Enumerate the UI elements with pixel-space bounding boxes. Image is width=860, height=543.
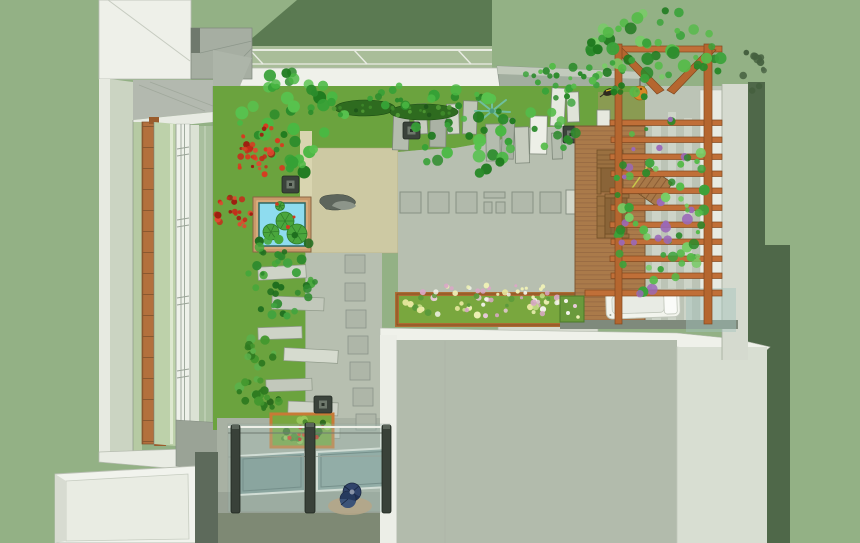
leaf [504, 309, 508, 313]
leaf [677, 161, 684, 168]
leaf [267, 288, 274, 295]
leaf [644, 127, 648, 131]
leaf [668, 117, 673, 122]
leaf [531, 73, 536, 78]
leaf [631, 147, 635, 151]
leaf [541, 143, 549, 151]
leaf [250, 212, 253, 215]
leaf [525, 287, 528, 290]
leaf [660, 252, 666, 258]
garden-render-viewport [0, 0, 860, 543]
leaf [243, 217, 248, 222]
leaf [291, 308, 298, 315]
leaf [450, 84, 461, 95]
leaf [631, 239, 637, 245]
leaf [640, 74, 649, 83]
wall-vent [191, 28, 200, 53]
leaf [653, 166, 659, 172]
leaf [264, 395, 270, 401]
leaf [678, 260, 685, 267]
leaf [269, 353, 276, 360]
block-roof-light [677, 347, 767, 543]
pergola-post-east [704, 44, 712, 324]
leaf [257, 378, 263, 384]
leaf [622, 175, 627, 180]
lower-roof-block [380, 328, 770, 543]
leaf [295, 290, 301, 296]
leaf [229, 210, 233, 214]
leaf [659, 74, 665, 80]
leaf [289, 136, 300, 147]
leaf [215, 212, 222, 219]
leaf [543, 67, 550, 74]
leaf [628, 57, 635, 64]
leaf [367, 96, 373, 102]
leaf [271, 79, 281, 89]
side-planter [560, 296, 584, 322]
leaf [475, 168, 485, 178]
leaf [646, 265, 652, 271]
leaf [581, 74, 587, 80]
leaf [498, 114, 509, 125]
leaf [655, 62, 663, 70]
leaf [278, 255, 283, 260]
leaf [687, 253, 696, 262]
leaf [245, 344, 251, 350]
leaf [495, 125, 506, 136]
leaf [506, 144, 515, 153]
leaf [689, 239, 699, 249]
leaf [309, 145, 318, 154]
leaf [251, 165, 254, 168]
leaf [489, 298, 494, 303]
leaf [618, 64, 627, 73]
leaf [417, 307, 423, 313]
glass-canopy [237, 46, 492, 70]
leaf [757, 58, 765, 66]
leaf [452, 290, 458, 296]
leaf [547, 108, 556, 117]
leaf [662, 7, 669, 14]
leaf [381, 101, 390, 110]
leaf [264, 236, 272, 244]
leaf [280, 143, 284, 147]
facade-glass-strip1 [133, 122, 142, 452]
leaf [281, 68, 291, 78]
leaf [697, 221, 705, 229]
leaf [483, 313, 488, 318]
leaf [531, 300, 537, 306]
leaf [260, 133, 264, 137]
garden-render [0, 0, 860, 543]
leaf [694, 159, 699, 164]
leaf [695, 209, 703, 217]
leaf [624, 203, 633, 212]
leaf [239, 196, 245, 202]
leaf [615, 26, 622, 33]
leaf [656, 145, 662, 151]
leaf [560, 144, 567, 151]
leaf [425, 309, 432, 316]
leaf [262, 171, 268, 177]
leaf [495, 157, 504, 166]
leaf [275, 138, 280, 143]
paver-row [400, 190, 596, 214]
leaf [423, 110, 426, 113]
leaf [475, 288, 480, 293]
leaf [619, 161, 627, 169]
leaf [697, 165, 705, 173]
leaf [260, 272, 264, 276]
leaf [564, 93, 570, 99]
leaf [554, 300, 559, 305]
leaf [238, 210, 242, 214]
leaf [603, 68, 612, 77]
leaf [586, 64, 593, 71]
leaf [639, 225, 648, 234]
leaf [260, 335, 269, 344]
leaf [375, 93, 382, 100]
leaf [411, 122, 421, 132]
leaf [739, 72, 747, 80]
leaf [647, 284, 658, 295]
leaf [219, 201, 223, 205]
leaf [553, 83, 559, 89]
leaf [539, 287, 543, 291]
leaf [685, 204, 689, 208]
leaf [553, 131, 562, 140]
leaf [693, 55, 698, 60]
leaf [432, 155, 443, 166]
leaf [259, 360, 266, 367]
leaf [235, 106, 248, 119]
leaf [427, 94, 435, 102]
leaf [283, 312, 290, 319]
leaf [250, 348, 256, 354]
leaf [696, 230, 700, 234]
leaf [274, 235, 283, 244]
leaf [549, 63, 556, 70]
leaf [505, 304, 509, 308]
leaf [525, 107, 536, 118]
leaf [616, 250, 624, 258]
leaf [361, 110, 364, 113]
leaf [632, 12, 644, 24]
leaf [312, 279, 318, 285]
window-mullion-strip [176, 124, 190, 448]
leaf [641, 93, 648, 100]
leaf [481, 303, 485, 307]
leaf [238, 163, 241, 166]
leaf [447, 105, 452, 110]
leaf [271, 303, 276, 308]
leaf [678, 59, 691, 72]
leaf [318, 81, 328, 91]
leaf [663, 235, 672, 244]
leaf [260, 386, 269, 395]
leaf [361, 104, 364, 107]
leaf [614, 175, 620, 181]
leaf [542, 88, 549, 95]
facade-wall-strip [110, 79, 133, 454]
leaf [435, 311, 441, 317]
leaf [667, 46, 680, 59]
leaf [484, 297, 488, 301]
leaf [593, 44, 603, 54]
leaf [474, 143, 481, 150]
leaf [520, 296, 523, 299]
leaf [532, 126, 538, 132]
leaf [749, 87, 755, 93]
leaf [262, 127, 267, 132]
leaf [292, 268, 301, 277]
leaf [288, 100, 300, 112]
leaf [545, 291, 550, 296]
leaf [618, 89, 624, 95]
leaf [694, 61, 702, 69]
leaf [674, 28, 680, 34]
leaf [674, 8, 684, 18]
leaf [389, 86, 397, 94]
leaf [248, 101, 259, 112]
leaf [587, 38, 596, 47]
leaf [440, 111, 445, 116]
leaf [258, 306, 264, 312]
leaf [571, 84, 576, 89]
leaf [532, 310, 536, 314]
leaf [259, 156, 264, 161]
leaf [553, 72, 559, 78]
leaf [255, 242, 265, 252]
leaf [665, 72, 672, 79]
leaf [705, 30, 713, 38]
leaf [278, 284, 285, 291]
leaf [308, 110, 313, 115]
leaf [466, 285, 470, 289]
leaf [701, 53, 712, 64]
leaf [424, 104, 429, 109]
leaf [420, 289, 426, 295]
leaf [668, 179, 675, 186]
leaf [304, 238, 314, 248]
leaf [267, 147, 272, 152]
lily-pad-vein [297, 234, 307, 235]
leaf [245, 270, 251, 276]
leaf [589, 77, 597, 85]
leaf [252, 284, 259, 291]
leaf [615, 192, 621, 198]
leaf [509, 118, 515, 124]
leaf [480, 127, 487, 134]
leaf [234, 212, 238, 216]
leaf [423, 158, 430, 165]
leaf [306, 85, 316, 95]
leaf [474, 312, 481, 319]
leaf [610, 60, 616, 66]
leaf [396, 113, 400, 117]
leaf [243, 147, 248, 152]
leaf [649, 276, 658, 285]
leaf [676, 232, 683, 239]
leaf [619, 240, 625, 246]
leaf [264, 165, 267, 168]
leaf [625, 213, 634, 222]
leaf [696, 148, 706, 158]
leaf [442, 147, 453, 158]
leaf [241, 397, 249, 405]
leaf [678, 196, 684, 202]
leaf [445, 122, 451, 128]
leaf [521, 287, 524, 290]
leaf [304, 293, 312, 301]
leaf [708, 43, 715, 50]
leaf [523, 291, 527, 295]
leaf [436, 105, 441, 110]
leaf [629, 87, 640, 98]
white-roof-corner [99, 0, 191, 79]
leaf [645, 158, 654, 167]
leaf [279, 165, 285, 171]
leaf [237, 216, 242, 221]
leaf [427, 113, 432, 118]
leaf [473, 150, 486, 163]
leaf [619, 261, 626, 268]
leaf [481, 92, 493, 104]
leaf [553, 95, 559, 101]
leaf [618, 82, 625, 89]
leaf [402, 299, 408, 305]
leaf [369, 106, 372, 109]
leaf [448, 112, 451, 115]
leaf [655, 39, 662, 46]
leaf [671, 273, 679, 281]
leaf [270, 109, 280, 119]
leaf [338, 112, 343, 117]
leaf [473, 111, 484, 122]
leaf [570, 128, 580, 138]
leaf [480, 288, 485, 293]
leaf [474, 293, 480, 299]
leaf [268, 310, 277, 319]
leaf [281, 131, 288, 138]
leaf [285, 155, 296, 166]
leaf [253, 148, 258, 153]
leaf [625, 23, 637, 35]
leaf [685, 208, 690, 213]
leaf [688, 24, 699, 35]
leaf [467, 303, 471, 307]
leaf [245, 154, 250, 159]
facade-glass-strip3 [190, 125, 199, 450]
leaf [661, 193, 671, 203]
leaf [602, 63, 607, 68]
leaf [418, 295, 424, 301]
leaf [699, 185, 710, 196]
leaf [507, 293, 511, 297]
leaf [495, 313, 499, 317]
leaf [484, 283, 489, 288]
leaf [629, 131, 635, 137]
leaf [761, 67, 766, 72]
leaf [715, 52, 727, 64]
leaf [461, 116, 467, 122]
leaf [252, 261, 261, 270]
leaf [292, 232, 298, 238]
leaf [567, 99, 575, 107]
leaf [633, 221, 639, 227]
leaf [658, 266, 664, 272]
leaf [655, 235, 662, 242]
leaf [616, 225, 626, 235]
leaf [237, 389, 242, 394]
leaf [422, 144, 429, 151]
leaf [642, 169, 650, 177]
leaf [287, 123, 299, 135]
leaf [233, 196, 237, 200]
leaf [676, 183, 684, 191]
leaf [540, 293, 545, 298]
leaf [606, 42, 619, 55]
shadow-recess [195, 452, 218, 543]
leaf [298, 160, 306, 168]
leaf [297, 255, 307, 265]
facade-glass-strip4 [199, 126, 213, 452]
leaf [327, 98, 335, 106]
leaf [282, 249, 287, 254]
leaf [684, 154, 691, 161]
leaf [269, 404, 274, 409]
leaf [237, 153, 244, 160]
leaf [744, 50, 750, 56]
leaf [569, 63, 578, 72]
leaf [319, 127, 329, 137]
leaf [455, 102, 462, 109]
leaf [258, 167, 261, 170]
leaf [611, 89, 618, 96]
leaf [354, 108, 358, 112]
leaf [395, 98, 400, 103]
leaf [474, 92, 479, 97]
leaf [546, 297, 550, 301]
leaf [535, 79, 541, 85]
leaf [338, 106, 342, 110]
leaf [419, 109, 422, 112]
leaf [566, 138, 573, 145]
leaf [227, 197, 230, 200]
leaf [444, 284, 449, 289]
leaf [244, 353, 251, 360]
leaf [238, 222, 242, 226]
leaf [241, 135, 245, 139]
leaf [237, 120, 243, 126]
leaf [252, 154, 257, 159]
block-roof-gray [397, 340, 677, 543]
leaf [269, 126, 273, 130]
leaf [450, 286, 454, 290]
leaf [465, 132, 473, 140]
leaf [241, 378, 249, 386]
leaf [523, 71, 529, 77]
leaf [259, 400, 264, 405]
leaf [508, 296, 514, 302]
leaf [496, 293, 499, 296]
stone-lantern-4 [314, 396, 332, 413]
leaf [557, 116, 566, 125]
leaf [714, 68, 721, 75]
leaf [402, 102, 409, 109]
leaf [636, 290, 643, 297]
leaf [433, 289, 438, 294]
